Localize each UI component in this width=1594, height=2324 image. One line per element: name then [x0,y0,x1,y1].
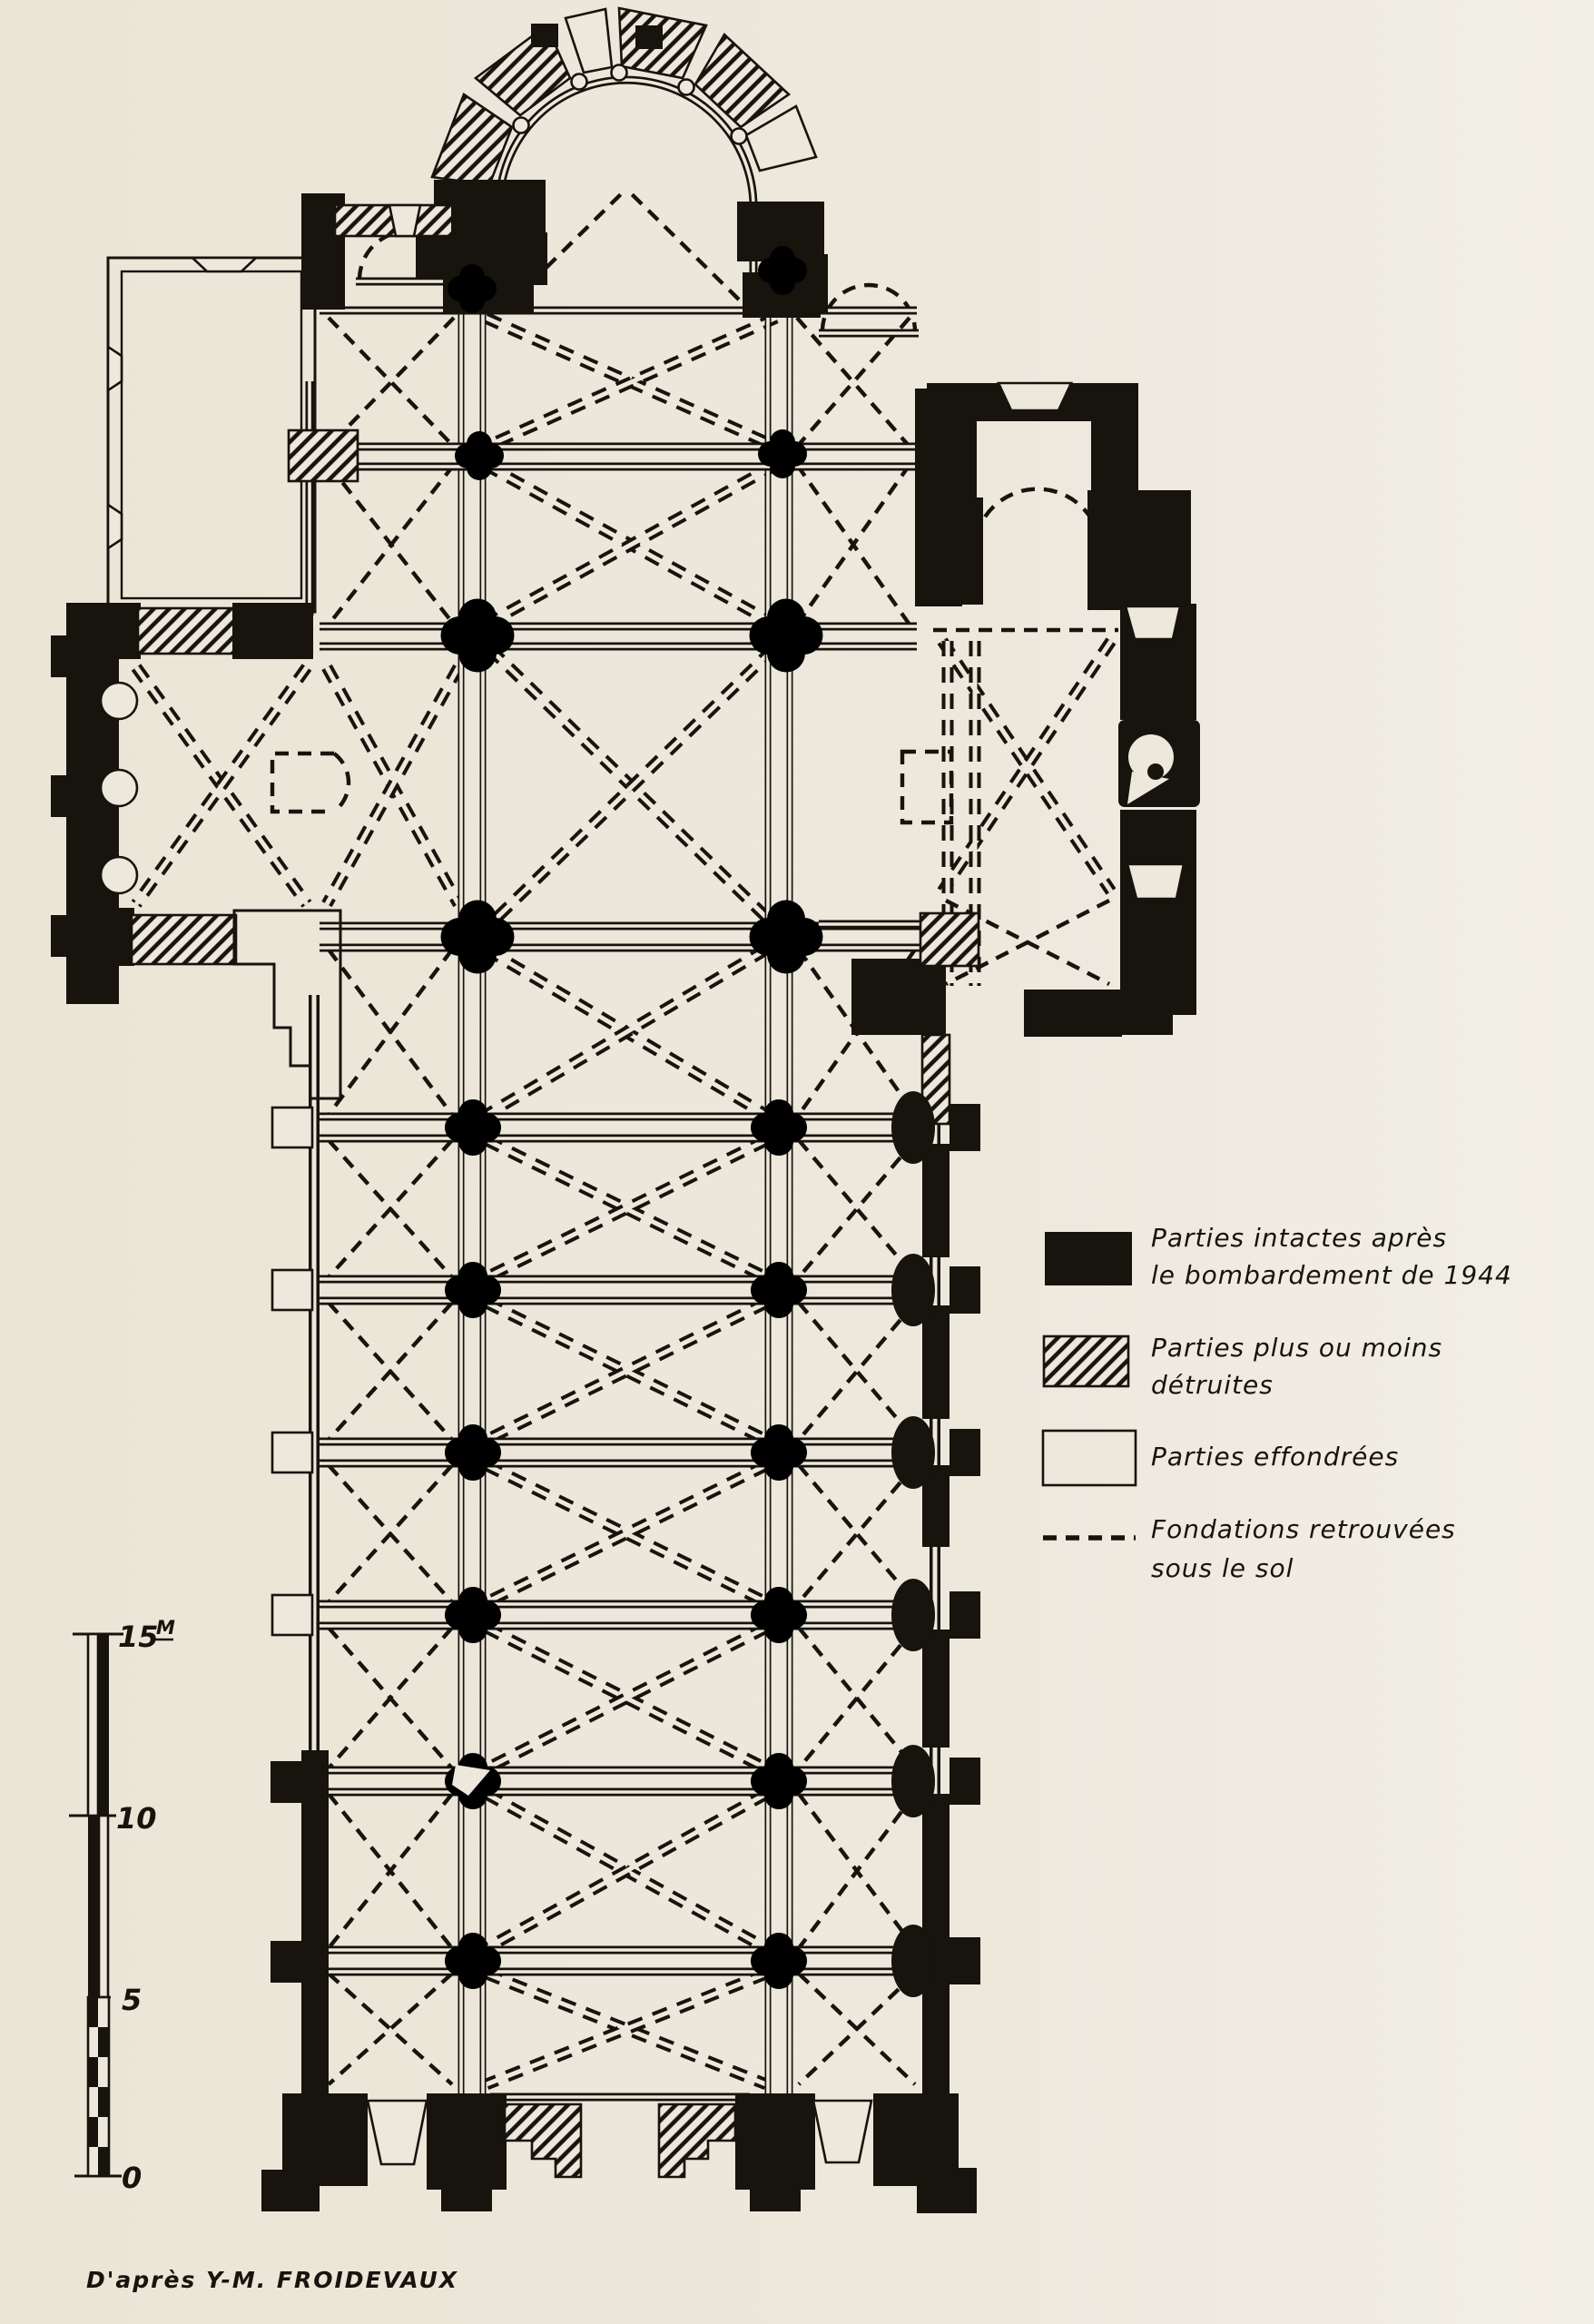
chapel-window-west-2 [108,505,122,548]
chapel-window-west-1 [108,347,122,390]
legend-label-intact-line2: le bombardement de 1944 [1151,1260,1512,1290]
church-floor-plan: 15 M 10 5 0 Parties intactes après le bo… [0,0,1594,2324]
scanned-page: 15 M 10 5 0 Parties intactes après le bo… [0,0,1594,2324]
legend-swatch-intact [1045,1232,1132,1285]
legend-label-intact-line1: Parties intactes après [1151,1223,1447,1253]
legend-swatch-destroyed [1044,1336,1128,1386]
legend-label-foundations-line1: Fondations retrouvées [1151,1514,1456,1544]
scale-label-15: 15 [118,1620,159,1654]
scale-unit-label: M [156,1617,175,1639]
legend-label-destroyed-line1: Parties plus ou moins [1151,1333,1442,1363]
scale-label-10: 10 [116,1801,157,1836]
attribution: D'après Y-M. FROIDEVAUX [86,2267,458,2293]
choir-north-wall-pier-hatched [289,430,358,481]
legend-label-foundations-line2: sous le sol [1151,1553,1294,1583]
southeast-chapel-window [999,383,1071,410]
legend-swatch-collapsed [1043,1431,1136,1485]
legend-label-collapsed: Parties effondrées [1151,1442,1399,1472]
scale-label-5: 5 [122,1983,142,2017]
legend-label-destroyed-line2: détruites [1151,1370,1274,1400]
spiral-stair [1118,720,1200,807]
scale-label-0: 0 [122,2161,142,2195]
